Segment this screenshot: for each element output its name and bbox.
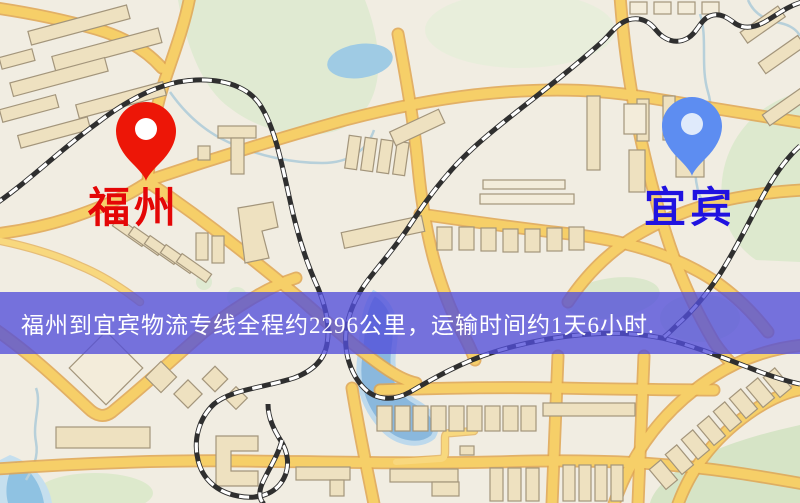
origin-pin-dot [135,118,157,140]
map-canvas[interactable]: 福州 宜宾 福州到宜宾物流专线全程约2296公里，运输时间约1天6小时. [0,0,800,503]
destination-city-label: 宜宾 [644,174,736,235]
map-graphics [0,0,800,503]
origin-city-label: 福州 [88,174,180,235]
route-info-banner: 福州到宜宾物流专线全程约2296公里，运输时间约1天6小时. [0,292,800,354]
destination-pin-dot [681,113,703,135]
route-info-text: 福州到宜宾物流专线全程约2296公里，运输时间约1天6小时. [0,306,655,340]
